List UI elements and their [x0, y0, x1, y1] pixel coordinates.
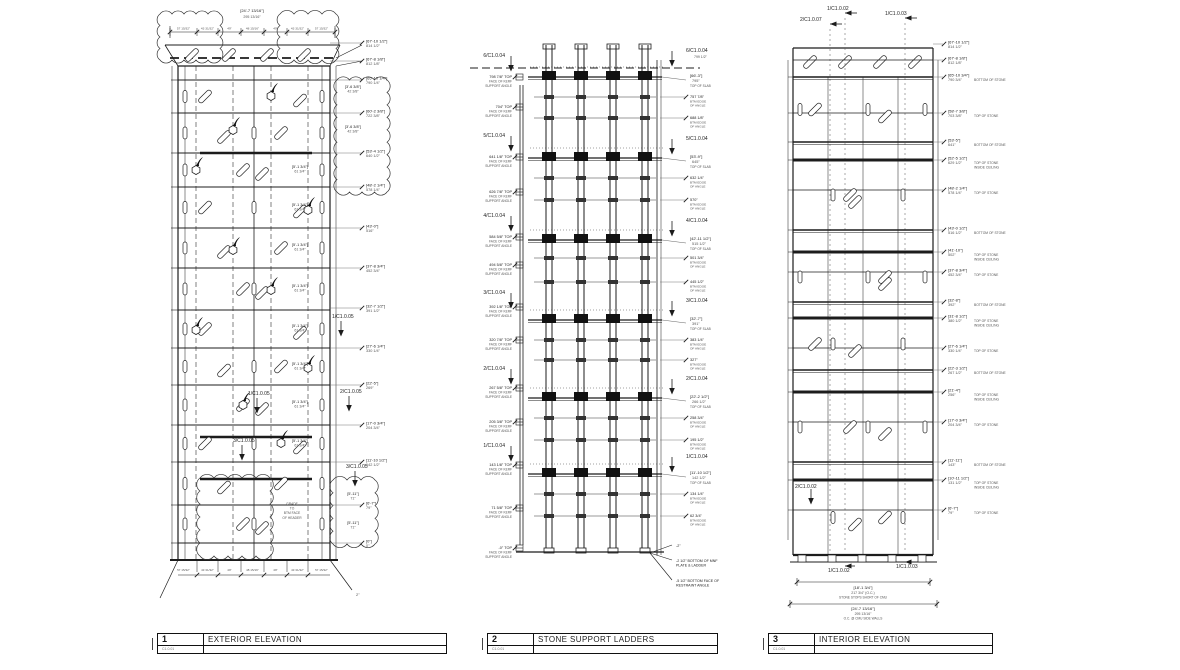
angle-caption-line: OF ANGLE — [690, 289, 705, 293]
cad-rect — [575, 44, 587, 49]
detail-callout: 1/C1.0.04 — [483, 443, 505, 449]
elevation-label-caption: BOTTOM OF STONE — [974, 143, 1007, 147]
bolt-hex-mark — [277, 439, 285, 448]
slab-caption: TOP OF SLAB — [690, 327, 711, 331]
elevation-label-caption: TOP OF STONE — [974, 273, 999, 277]
slab-elevation-bracket: [42'-11 1/2"] — [690, 236, 711, 241]
detail-callout: 1/C1.0.03 — [885, 11, 907, 17]
cell-dim-value: 61 3/4" — [294, 329, 306, 333]
title-block-grid: 1 EXTERIOR ELEVATION C1.0.01 — [158, 634, 446, 653]
dim-text: 57 15/32" — [315, 27, 328, 31]
angle-clip — [576, 116, 586, 120]
elevation-label-caption: INSIDE CEILING — [974, 258, 1000, 262]
elevation-label-caption: INSIDE CEILING — [974, 486, 1000, 490]
elevation-label-bracket: [37'-8 3/4"] — [366, 264, 385, 269]
angle-clip — [640, 116, 650, 120]
callout-arrow-down — [808, 498, 814, 505]
angle-clip — [576, 492, 586, 496]
grade-note-line: TO — [290, 507, 295, 511]
kerf-caption-line: SUPPORT ANGLE — [485, 84, 512, 88]
angle-caption-line: OF ANGLE — [690, 347, 705, 351]
angle-elevation-value: 383 1/4" — [690, 338, 705, 342]
angle-clip — [544, 514, 554, 518]
cad-line — [336, 61, 362, 66]
dim-text: 49" — [273, 568, 277, 572]
elevation-label-caption: TOP OF STONE — [974, 161, 999, 165]
detail-callout: 2/C1.0.04 — [483, 366, 505, 372]
anchor-slot-mark — [252, 127, 256, 139]
elevation-label-caption: BOTTOM OF STONE — [974, 231, 1007, 235]
ladder-hardware — [638, 71, 652, 80]
angle-clip — [608, 176, 618, 180]
stone-panel-mark — [808, 102, 823, 117]
angle-clip — [544, 438, 554, 442]
dim-text: 2" — [356, 592, 360, 597]
angle-clip — [608, 280, 618, 284]
detail-callout: 2/C1.0.04 — [686, 376, 708, 382]
elevation-label-caption: TOP OF STONE — [974, 191, 999, 195]
angle-elevation-value: 688 1/8" — [690, 116, 705, 120]
elevation-label-value: 267 1/2" — [948, 371, 963, 375]
stone-panel-mark — [878, 510, 893, 525]
elevation-label-bracket: [58'-7 3/8"] — [948, 109, 967, 114]
elevation-label-value: 516" — [366, 229, 374, 233]
detail-callout: 3/C1.0.05 — [346, 464, 368, 470]
revision-cloud — [330, 476, 378, 547]
angle-caption-line: OF ANGLE — [690, 425, 705, 429]
elevation-label-bracket: [67'-10 1/2"] — [366, 39, 387, 44]
dim-text: 49" — [227, 27, 232, 31]
stone-panel-mark — [293, 93, 308, 108]
elevation-label-bracket: [67'-10 1/2"] — [948, 40, 969, 45]
elevation-label-caption: TOP OF STONE — [974, 253, 999, 257]
cell-dim-value: 61 3/4" — [294, 444, 306, 448]
cell-dim-bracket: [5'-11"] — [347, 492, 359, 496]
angle-clip — [640, 514, 650, 518]
angle-caption-line: OF ANGLE — [690, 501, 705, 505]
anchor-slot-mark — [183, 91, 187, 103]
dim-text: STONE STOPS SHORT OF CMU — [839, 596, 888, 600]
slab-elevation-bracket: [32'-7"] — [690, 316, 702, 321]
elevation-label-bracket: [17'-0 3/4"] — [366, 421, 385, 426]
kerf-elevation-value: 798 7/8" TOP — [489, 75, 512, 79]
cell-dim-bracket: [5'-1 3/4"] — [292, 243, 308, 247]
cell-dim-bracket: [5'-1 3/4"] — [292, 284, 308, 288]
kerf-caption-line: SUPPORT ANGLE — [485, 555, 512, 559]
elevation-label-bracket: [48'-2 1/4"] — [948, 186, 967, 191]
elevation-label-bracket: [22'-3 1/2"] — [948, 366, 967, 371]
slab-caption: TOP OF SLAB — [690, 165, 711, 169]
angle-clip — [608, 438, 618, 442]
leader-flag — [196, 317, 203, 326]
elevation-label-bracket: [48'-2 1/4"] — [366, 183, 385, 188]
anchor-slot-mark — [320, 361, 324, 373]
stone-panel-mark — [848, 517, 863, 532]
dim-text: 295 13/16" — [243, 15, 261, 19]
angle-clip — [608, 338, 618, 342]
anchor-slot-mark — [923, 271, 927, 283]
elevation-label-bracket: [32'-7 1/2"] — [366, 304, 385, 309]
elevation-label-value: 814 1/2" — [366, 44, 381, 48]
leader-flag — [271, 83, 278, 92]
cell-dim-value: 61 3/4" — [294, 248, 306, 252]
angle-clip — [576, 438, 586, 442]
bolt-hex-mark — [192, 326, 200, 335]
angle-clip — [640, 492, 650, 496]
kerf-elevation-value: 320 7/8" TOP — [489, 338, 512, 342]
stone-panel-mark — [803, 55, 818, 70]
cell-dim-value: 61 3/4" — [294, 289, 306, 293]
elevation-label-bracket: [17'-0 3/4"] — [948, 418, 967, 423]
elevation-label-caption: TOP OF STONE — [974, 423, 999, 427]
cell-dim-bracket: [3'-6 3/8"] — [345, 85, 361, 89]
detail-callout: 4/C1.0.04 — [686, 218, 708, 224]
detail-callout: 6/C1.0.04 — [483, 53, 505, 59]
angle-clip — [640, 280, 650, 284]
detail-callout: 2/C1.0.02 — [795, 484, 817, 490]
anchor-slot-mark — [183, 518, 187, 530]
elevation-label-bracket: [43'-0 1/2"] — [948, 226, 967, 231]
dim-text: 57 15/32" — [315, 568, 328, 572]
viewport-scale: C1.0.01 — [769, 646, 815, 653]
angle-elevation-value: 258 3/4" — [690, 416, 705, 420]
angle-clip — [544, 176, 554, 180]
callout-sub-dim: 799 1/2" — [694, 55, 708, 59]
callout-arrow-down — [669, 388, 675, 395]
elevation-label-caption: BOTTOM OF STONE — [974, 371, 1007, 375]
elevation-label-value: 578 1/4" — [948, 191, 963, 195]
callout-arrow-down — [508, 378, 514, 385]
bolt-hex-mark — [239, 401, 247, 410]
slab-caption: TOP OF SLAB — [690, 481, 711, 485]
dim-text: 49" — [227, 568, 231, 572]
anchor-slot-mark — [866, 421, 870, 433]
anchor-slot-mark — [252, 361, 256, 373]
elevation-label-caption: INSIDE CEILING — [974, 398, 1000, 402]
angle-clip — [640, 416, 650, 420]
dim-text: 48 15/16" — [246, 27, 259, 31]
callout-arrow-left — [830, 22, 837, 27]
callout-arrow-down — [508, 225, 514, 232]
slab-elevation-value: 266 1/2" — [692, 400, 707, 404]
dim-text: [18'-1 3/4"] — [853, 585, 872, 590]
viewport-title: INTERIOR ELEVATION — [815, 634, 992, 646]
elevation-label-bracket: [11'-10 1/2"] — [366, 458, 387, 463]
angle-clip — [640, 198, 650, 202]
viewport-number: 1 — [158, 634, 204, 646]
angle-clip — [544, 338, 554, 342]
anchor-slot-mark — [798, 104, 802, 116]
dim-text: 295 13/16" — [855, 612, 873, 616]
angle-elevation-value: 570" — [690, 198, 698, 202]
elevation-label-bracket: [11'-11"] — [948, 458, 962, 463]
leader-flag — [233, 117, 240, 126]
elevation-label-value: 380 1/2" — [948, 319, 963, 323]
cad-line — [160, 560, 178, 598]
cad-rect — [639, 44, 651, 49]
elevation-label-value: 790 3/4" — [948, 78, 963, 82]
cell-dim-bracket: [5'-1 3/4"] — [292, 362, 308, 366]
angle-clip — [640, 256, 650, 260]
elevation-label-value: 131 1/2" — [948, 481, 963, 485]
anchor-slot-mark — [798, 271, 802, 283]
elevation-label-value: 452 3/4" — [366, 269, 381, 273]
slab-elevation-value: 391" — [692, 322, 700, 326]
stone-panel-mark — [198, 436, 213, 451]
angle-clip — [608, 116, 618, 120]
leader-flag — [196, 157, 203, 166]
stone-panel-mark — [236, 282, 251, 297]
stone-panel-mark — [878, 427, 893, 442]
elevation-label-value: 269" — [366, 386, 374, 390]
dim-text: 43 31/32" — [291, 27, 304, 31]
cell-dim-bracket: [3'-6 3/8"] — [345, 125, 361, 129]
grade-note-line: BTM FACE — [284, 511, 301, 515]
slab-caption: TOP OF SLAB — [690, 84, 711, 88]
slab-elevation-bracket: [11'-10 1/2"] — [690, 470, 711, 475]
elevation-label-value: 812 1/8" — [366, 62, 381, 66]
kerf-caption-line: SUPPORT ANGLE — [485, 244, 512, 248]
elevation-label-value: 142 1/2" — [366, 463, 381, 467]
stone-panel-mark — [222, 48, 237, 63]
elevation-label-caption: INSIDE CEILING — [974, 166, 1000, 170]
title-block-interior-elevation: 3 INTERIOR ELEVATION C1.0.01 — [768, 633, 993, 654]
angle-clip — [576, 256, 586, 260]
kerf-caption-line: SUPPORT ANGLE — [485, 164, 512, 168]
angle-clip — [608, 358, 618, 362]
viewport-number: 3 — [769, 634, 815, 646]
kerf-caption-line: SUPPORT ANGLE — [485, 395, 512, 399]
angle-elevation-value: 632 1/4" — [690, 176, 705, 180]
cell-dim-value: 61 3/4" — [294, 405, 306, 409]
kerf-elevation-value: 143 1/8" TOP — [489, 463, 512, 467]
elevation-label-value: 330 1/4" — [366, 349, 381, 353]
elevation-label-bracket: [22'-5"] — [366, 381, 378, 386]
elevation-label-value: 812 1/8" — [948, 61, 963, 65]
cad-line — [662, 398, 686, 401]
angle-clip — [544, 116, 554, 120]
elevation-label-caption: TOP OF STONE — [974, 319, 999, 323]
slab-elevation-value: 142 1/2" — [692, 476, 707, 480]
angle-clip — [608, 416, 618, 420]
title-block-exterior-elevation: 1 EXTERIOR ELEVATION C1.0.01 — [157, 633, 447, 654]
stone-support-ladders-view: 798 7/8" TOPFACE OF KERFSUPPORT ANGLE704… — [470, 44, 720, 588]
kerf-caption-line: SUPPORT ANGLE — [485, 347, 512, 351]
title-block-grid: 3 INTERIOR ELEVATION C1.0.01 — [769, 634, 992, 653]
anchor-slot-mark — [183, 127, 187, 139]
elevation-label-value: 722 3/8" — [366, 114, 381, 118]
drawing-sheet: 57 15/32"43 31/32"49"48 15/16"49"43 31/3… — [0, 0, 1180, 670]
elevation-label-bracket: [65'-10 3/4"] — [948, 73, 969, 78]
revision-cloud — [277, 10, 339, 63]
cell-dim-value: 61 3/4" — [294, 208, 306, 212]
anchor-slot-mark — [183, 164, 187, 176]
angle-caption-line: OF ANGLE — [690, 104, 705, 108]
angle-clip — [576, 338, 586, 342]
stone-panel-mark — [217, 363, 232, 378]
detail-callout: 5/C1.0.04 — [686, 136, 708, 142]
elevation-label-bracket: [27'-6 1/4"] — [948, 344, 967, 349]
ladder-hardware — [574, 71, 588, 80]
stone-panel-mark — [198, 200, 213, 215]
detail-callout: 1/C1.0.02 — [828, 568, 850, 574]
anchor-slot-mark — [320, 164, 324, 176]
cad-line — [662, 158, 686, 161]
ladder-hardware — [542, 234, 556, 243]
exterior-elevation-view: 57 15/32"43 31/32"49"48 15/16"49"43 31/3… — [157, 8, 390, 598]
cad-rect — [607, 44, 619, 49]
cell-dim-bracket: [5'-1 3/4"] — [292, 400, 308, 404]
angle-caption-line: OF ANGLE — [690, 447, 705, 451]
elevation-label-value: 256" — [948, 393, 956, 397]
elevation-label-bracket: [31'-8 1/2"] — [948, 314, 967, 319]
angle-elevation-value: 501 3/4" — [690, 256, 705, 260]
elevation-label-caption: INSIDE CEILING — [974, 324, 1000, 328]
anchor-slot-mark — [320, 127, 324, 139]
elevation-label-bracket: [52'-5 1/2"] — [948, 156, 967, 161]
angle-clip — [576, 358, 586, 362]
anchor-slot-mark — [320, 518, 324, 530]
angle-elevation-value: 327" — [690, 358, 698, 362]
dim-text: 48 15/16" — [246, 568, 259, 572]
elevation-label-value: 204 3/4" — [948, 423, 963, 427]
ladder-hardware — [638, 314, 652, 323]
ladder-hardware — [606, 392, 620, 401]
angle-clip — [544, 492, 554, 496]
ladder-hardware — [638, 392, 652, 401]
angle-caption-line: OF ANGLE — [690, 125, 705, 129]
elevation-label-caption: BOTTOM OF STONE — [974, 78, 1007, 82]
elevation-label-value: 640 1/2" — [366, 154, 381, 158]
detail-callout: 4/C1.0.04 — [483, 213, 505, 219]
anchor-slot-mark — [831, 338, 835, 350]
bottom-note-line: -2 1/2" BOTTOM OF MNF — [676, 559, 718, 563]
detail-callout: 6/C1.0.04 — [686, 48, 708, 54]
viewport-scale: C1.0.01 — [158, 646, 204, 653]
angle-caption-line: OF ANGLE — [690, 367, 705, 371]
angle-clip — [576, 280, 586, 284]
stone-panel-mark — [274, 241, 289, 256]
cell-dim-value: 71" — [350, 526, 356, 530]
cad-line — [662, 320, 686, 323]
angle-elevation-value: 757 7/8" — [690, 95, 705, 99]
cell-dim-value: 61 3/4" — [294, 367, 306, 371]
cad-line — [662, 240, 686, 243]
ladder-hardware — [542, 314, 556, 323]
bolt-hex-mark — [267, 92, 275, 101]
anchor-slot-mark — [320, 399, 324, 411]
leader-flag — [271, 277, 278, 286]
title-block-grid: 2 STONE SUPPORT LADDERS C1.0.01 — [488, 634, 717, 653]
cell-dim-bracket: [5'-1 3/4"] — [292, 324, 308, 328]
kerf-elevation-value: 584 5/8" TOP — [489, 235, 512, 239]
kerf-caption-line: SUPPORT ANGLE — [485, 314, 512, 318]
leader-flag — [308, 355, 315, 364]
elevation-label-value: 452 3/4" — [948, 273, 963, 277]
anchor-slot-mark — [320, 438, 324, 450]
cell-dim-bracket: [5'-1 3/4"] — [292, 439, 308, 443]
angle-caption-line: OF ANGLE — [690, 185, 705, 189]
elevation-label-bracket: [32'-8"] — [948, 298, 960, 303]
viewport-title: STONE SUPPORT LADDERS — [534, 634, 717, 646]
stone-panel-mark — [848, 344, 863, 359]
ladder-hardware — [574, 234, 588, 243]
angle-elevation-value: 195 1/2" — [690, 438, 705, 442]
detail-callout: 2/C1.0.05 — [340, 389, 362, 395]
stone-panel-mark — [236, 163, 251, 178]
callout-arrow-down — [669, 230, 675, 237]
ladder-hardware — [638, 152, 652, 161]
anchor-slot-mark — [183, 242, 187, 254]
elevation-label-value: 629 1/2" — [948, 161, 963, 165]
anchor-slot-mark — [320, 478, 324, 490]
bolt-hex-mark — [192, 166, 200, 175]
stone-panel-mark — [873, 55, 888, 70]
stone-panel-mark — [260, 48, 275, 63]
detail-callout: 3/C1.0.04 — [483, 290, 505, 296]
anchor-slot-mark — [923, 104, 927, 116]
ladder-hardware — [638, 468, 652, 477]
stone-panel-mark — [808, 337, 823, 352]
kerf-elevation-value: 641 1/8" TOP — [489, 155, 512, 159]
cell-dim-bracket: [5'-11"] — [347, 521, 359, 525]
slab-caption: TOP OF SLAB — [690, 405, 711, 409]
ladder-hardware — [542, 468, 556, 477]
ladder-hardware — [542, 71, 556, 80]
dim-text: [24'-7 13/16"] — [851, 606, 875, 611]
anchor-slot-mark — [320, 323, 324, 335]
angle-clip — [608, 198, 618, 202]
elevation-label-caption: BOTTOM OF STONE — [974, 463, 1007, 467]
elevation-label-caption: TOP OF STONE — [974, 114, 999, 118]
elevation-label-value: 516 1/2" — [948, 231, 963, 235]
slab-elevation-value: 515 1/2" — [692, 242, 707, 246]
stone-panel-mark — [274, 126, 289, 141]
dim-text: 43 31/32" — [201, 27, 214, 31]
angle-caption-line: OF ANGLE — [690, 207, 705, 211]
anchor-slot-mark — [901, 512, 905, 524]
elevation-label-value: 814 1/2" — [948, 45, 963, 49]
elevation-label-bracket: [67'-8 1/8"] — [948, 56, 967, 61]
elevation-label-caption: TOP OF STONE — [974, 349, 999, 353]
elevation-label-bracket: [27'-6 1/4"] — [366, 344, 385, 349]
cad-line — [662, 474, 686, 477]
elevation-label-value: 502" — [948, 253, 956, 257]
callout-arrow-down — [346, 405, 352, 412]
anchor-slot-mark — [320, 91, 324, 103]
grade-note-line: OF HEADER — [282, 516, 302, 520]
stone-panel-mark — [236, 517, 251, 532]
elevation-label-bracket: [6'-7"] — [366, 501, 376, 506]
slab-caption: TOP OF SLAB — [690, 247, 711, 251]
detail-callout: 1/C1.0.05 — [248, 391, 270, 397]
cell-dim-value: 61 3/4" — [294, 170, 306, 174]
kerf-elevation-value: 392 1/8" TOP — [489, 305, 512, 309]
bolt-hex-mark — [229, 246, 237, 255]
anchor-slot-mark — [901, 189, 905, 201]
detail-callout: 1/C1.0.05 — [332, 314, 354, 320]
elevation-label-value: 391 1/2" — [366, 309, 381, 313]
anchor-slot-mark — [923, 421, 927, 433]
angle-clip — [544, 358, 554, 362]
detail-callout: 5/C1.0.04 — [483, 133, 505, 139]
cad-line — [650, 553, 672, 580]
title-block-spacer — [815, 646, 992, 653]
elevation-label-value: 204 3/4" — [366, 426, 381, 430]
detail-callout: 1/C1.0.04 — [686, 454, 708, 460]
detail-callout: 3/C1.0.04 — [686, 298, 708, 304]
angle-clip — [640, 358, 650, 362]
